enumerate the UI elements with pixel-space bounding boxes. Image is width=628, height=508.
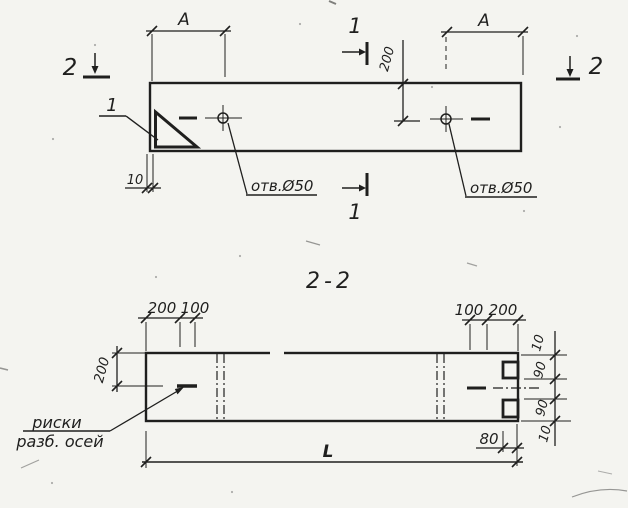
marker-1-bottom-label: 1 xyxy=(348,200,361,224)
dimension-length-L: L xyxy=(141,431,523,468)
joint-lines-right xyxy=(437,354,444,420)
scan-artifacts xyxy=(0,1,627,497)
marker-2-left-label: 2 xyxy=(63,55,78,81)
section-marker-2-left: 2 xyxy=(63,53,110,81)
dimension-a-left: A xyxy=(146,10,231,81)
dimension-a-right: A xyxy=(441,11,528,75)
section-title: 2-2 xyxy=(306,269,354,294)
dim-80-value: 80 xyxy=(479,430,498,448)
hole-label-right: отв.Ø50 xyxy=(449,124,537,197)
arrowhead xyxy=(92,66,99,74)
section-view: 2-2 200 100 xyxy=(15,269,571,468)
beam-outline-plan xyxy=(150,83,521,151)
dim-a-right-value: A xyxy=(477,11,490,31)
arrowhead xyxy=(359,49,366,56)
leader-line xyxy=(449,124,466,196)
arrowhead xyxy=(567,69,574,77)
marker-2-right-label: 2 xyxy=(589,54,604,80)
dim-200-top-value: 200 xyxy=(377,45,398,73)
arrowhead xyxy=(175,387,184,394)
detail-leader-line xyxy=(126,116,158,140)
dim-10-upper: 10 xyxy=(529,333,548,353)
joint-lines-left xyxy=(217,354,224,420)
detail-callout-label: 1 xyxy=(106,95,117,116)
axis-note-line1: риски xyxy=(31,413,81,432)
dim-200-value: 200 xyxy=(489,301,518,319)
hole-label-left-text: отв.Ø50 xyxy=(251,177,313,195)
axis-note-line2: разб. осей xyxy=(15,432,103,451)
dim-length-value: L xyxy=(323,442,334,462)
hole-right xyxy=(430,106,490,132)
section-marker-1-bottom: 1 xyxy=(342,173,367,224)
section-marker-1-top: 1 xyxy=(342,14,367,65)
arrowhead xyxy=(359,185,366,192)
dimensions-top-left: 200 100 xyxy=(138,299,209,351)
dimension-10-left: 10 xyxy=(125,154,161,193)
dim-200-value: 200 xyxy=(148,299,177,317)
end-notch-upper xyxy=(503,362,518,378)
dim-10-left-value: 10 xyxy=(127,173,144,188)
hole-left xyxy=(179,105,242,131)
drawing-sheet: 1 A xyxy=(0,0,628,508)
marker-1-top-label: 1 xyxy=(348,14,361,38)
section-marker-2-right: 2 xyxy=(556,54,603,80)
dim-90-lower: 90 xyxy=(533,398,552,418)
top-view: 1 A xyxy=(63,10,604,224)
dim-90-upper: 90 xyxy=(531,360,550,380)
dimensions-top-right: 100 200 xyxy=(455,301,526,351)
dim-a-left-value: A xyxy=(177,10,190,30)
dim-height-left-value: 200 xyxy=(91,355,113,384)
end-notch-lower xyxy=(503,400,518,417)
technical-drawing: 1 A xyxy=(0,0,628,508)
dim-100-value: 100 xyxy=(455,301,484,319)
hole-label-left: отв.Ø50 xyxy=(228,123,317,195)
beam-outline-section xyxy=(146,353,518,421)
leader-line xyxy=(228,123,247,194)
dim-100-value: 100 xyxy=(181,299,210,317)
axis-marks-note: риски разб. осей xyxy=(15,387,184,451)
dim-10-lower: 10 xyxy=(536,424,555,444)
dimensions-right-end: 10 90 90 10 xyxy=(521,331,571,446)
hole-label-right-text: отв.Ø50 xyxy=(470,179,532,197)
dimension-80: 80 xyxy=(476,424,524,466)
